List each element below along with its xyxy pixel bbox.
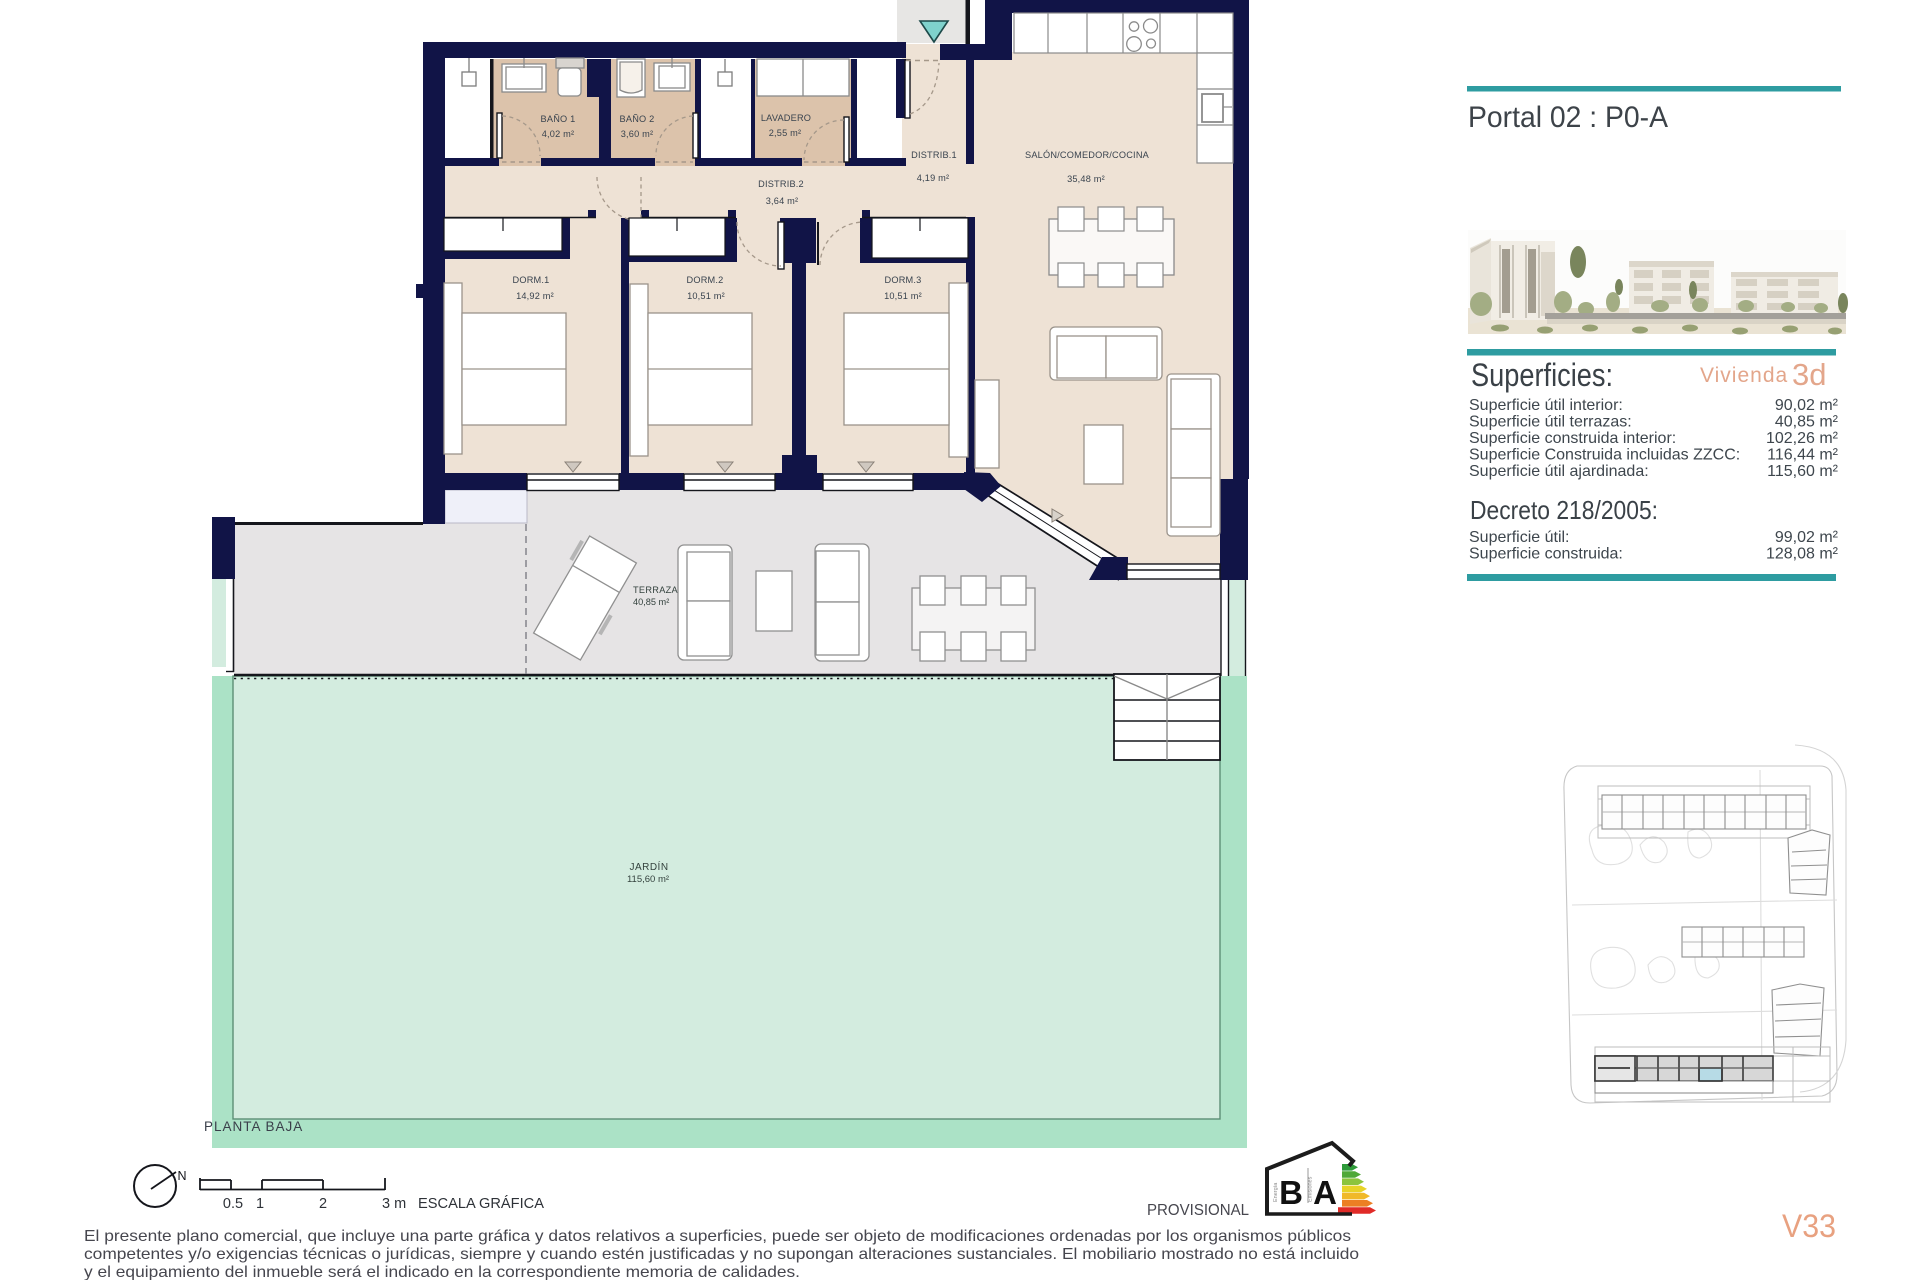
svg-text:4,02 m²: 4,02 m² <box>542 129 575 139</box>
svg-text:99,02 m²: 99,02 m² <box>1775 529 1839 546</box>
svg-text:PLANTA BAJA: PLANTA BAJA <box>204 1119 303 1134</box>
svg-text:BAÑO 2: BAÑO 2 <box>620 114 655 124</box>
svg-text:Superficie Construida incluida: Superficie Construida incluidas ZZCC: <box>1469 447 1740 464</box>
svg-text:N: N <box>178 1169 187 1183</box>
svg-text:Energía: Energía <box>1273 1182 1279 1202</box>
svg-text:10,51 m²: 10,51 m² <box>687 291 725 301</box>
svg-text:90,02 m²: 90,02 m² <box>1775 397 1839 414</box>
svg-text:Superficie útil terrazas:: Superficie útil terrazas: <box>1469 414 1632 431</box>
svg-text:0.5: 0.5 <box>223 1196 243 1212</box>
svg-text:116,44 m²: 116,44 m² <box>1767 447 1839 464</box>
svg-text:40,85 m²: 40,85 m² <box>1775 414 1839 431</box>
svg-text:PROVISIONAL: PROVISIONAL <box>1147 1202 1249 1219</box>
svg-text:1: 1 <box>256 1196 264 1212</box>
svg-text:Vivienda: Vivienda <box>1700 364 1788 387</box>
svg-text:BAÑO 1: BAÑO 1 <box>541 114 576 124</box>
svg-text:14,92 m²: 14,92 m² <box>516 291 554 301</box>
svg-text:40,85 m²: 40,85 m² <box>633 597 669 607</box>
svg-text:y el equipamiento del inmueble: y el equipamiento del inmueble será el i… <box>84 1264 800 1280</box>
svg-text:Superficie útil ajardinada:: Superficie útil ajardinada: <box>1469 463 1649 480</box>
svg-text:JARDÍN: JARDÍN <box>629 860 668 873</box>
svg-text:B: B <box>1279 1174 1303 1211</box>
svg-text:102,26 m²: 102,26 m² <box>1766 430 1839 447</box>
svg-text:3 m: 3 m <box>382 1196 406 1212</box>
svg-text:10,51 m²: 10,51 m² <box>884 291 922 301</box>
svg-text:115,60 m²: 115,60 m² <box>627 874 669 885</box>
svg-text:DORM.2: DORM.2 <box>687 275 724 285</box>
svg-text:35,48 m²: 35,48 m² <box>1067 174 1105 184</box>
svg-text:4,19 m²: 4,19 m² <box>917 173 950 183</box>
svg-text:3,64 m²: 3,64 m² <box>766 196 799 206</box>
svg-text:128,08 m²: 128,08 m² <box>1766 546 1839 563</box>
svg-text:Decreto 218/2005:: Decreto 218/2005: <box>1470 495 1658 525</box>
svg-text:El presente plano comercial, q: El presente plano comercial, que incluye… <box>84 1228 1351 1245</box>
svg-text:Superficie construida interior: Superficie construida interior: <box>1469 430 1676 447</box>
svg-text:Superficie útil interior:: Superficie útil interior: <box>1469 397 1623 414</box>
svg-text:SALÓN/COMEDOR/COCINA: SALÓN/COMEDOR/COCINA <box>1025 150 1150 160</box>
svg-text:V33: V33 <box>1782 1208 1836 1244</box>
svg-text:ESCALA GRÁFICA: ESCALA GRÁFICA <box>418 1195 544 1212</box>
svg-text:DORM.3: DORM.3 <box>885 275 922 285</box>
svg-text:Portal 02 : P0-A: Portal 02 : P0-A <box>1468 101 1668 134</box>
svg-text:3d: 3d <box>1792 357 1826 392</box>
svg-text:2,55 m²: 2,55 m² <box>769 128 802 138</box>
svg-text:DORM.1: DORM.1 <box>513 275 550 285</box>
svg-text:TERRAZA: TERRAZA <box>633 585 679 595</box>
svg-text:Superficie útil:: Superficie útil: <box>1469 529 1570 546</box>
svg-text:Superficies:: Superficies: <box>1471 357 1613 393</box>
svg-text:DISTRIB.2: DISTRIB.2 <box>758 179 804 189</box>
svg-text:Superficie construida:: Superficie construida: <box>1469 546 1623 563</box>
svg-text:A: A <box>1313 1174 1337 1211</box>
svg-text:DISTRIB.1: DISTRIB.1 <box>911 150 957 160</box>
svg-text:LAVADERO: LAVADERO <box>761 113 811 123</box>
svg-text:competentes y/o exigencias téc: competentes y/o exigencias técnicas o ju… <box>84 1246 1359 1263</box>
svg-text:2: 2 <box>319 1196 327 1212</box>
svg-text:Emisiones: Emisiones <box>1308 1176 1314 1202</box>
svg-text:3,60 m²: 3,60 m² <box>621 129 654 139</box>
svg-text:115,60 m²: 115,60 m² <box>1767 463 1839 480</box>
